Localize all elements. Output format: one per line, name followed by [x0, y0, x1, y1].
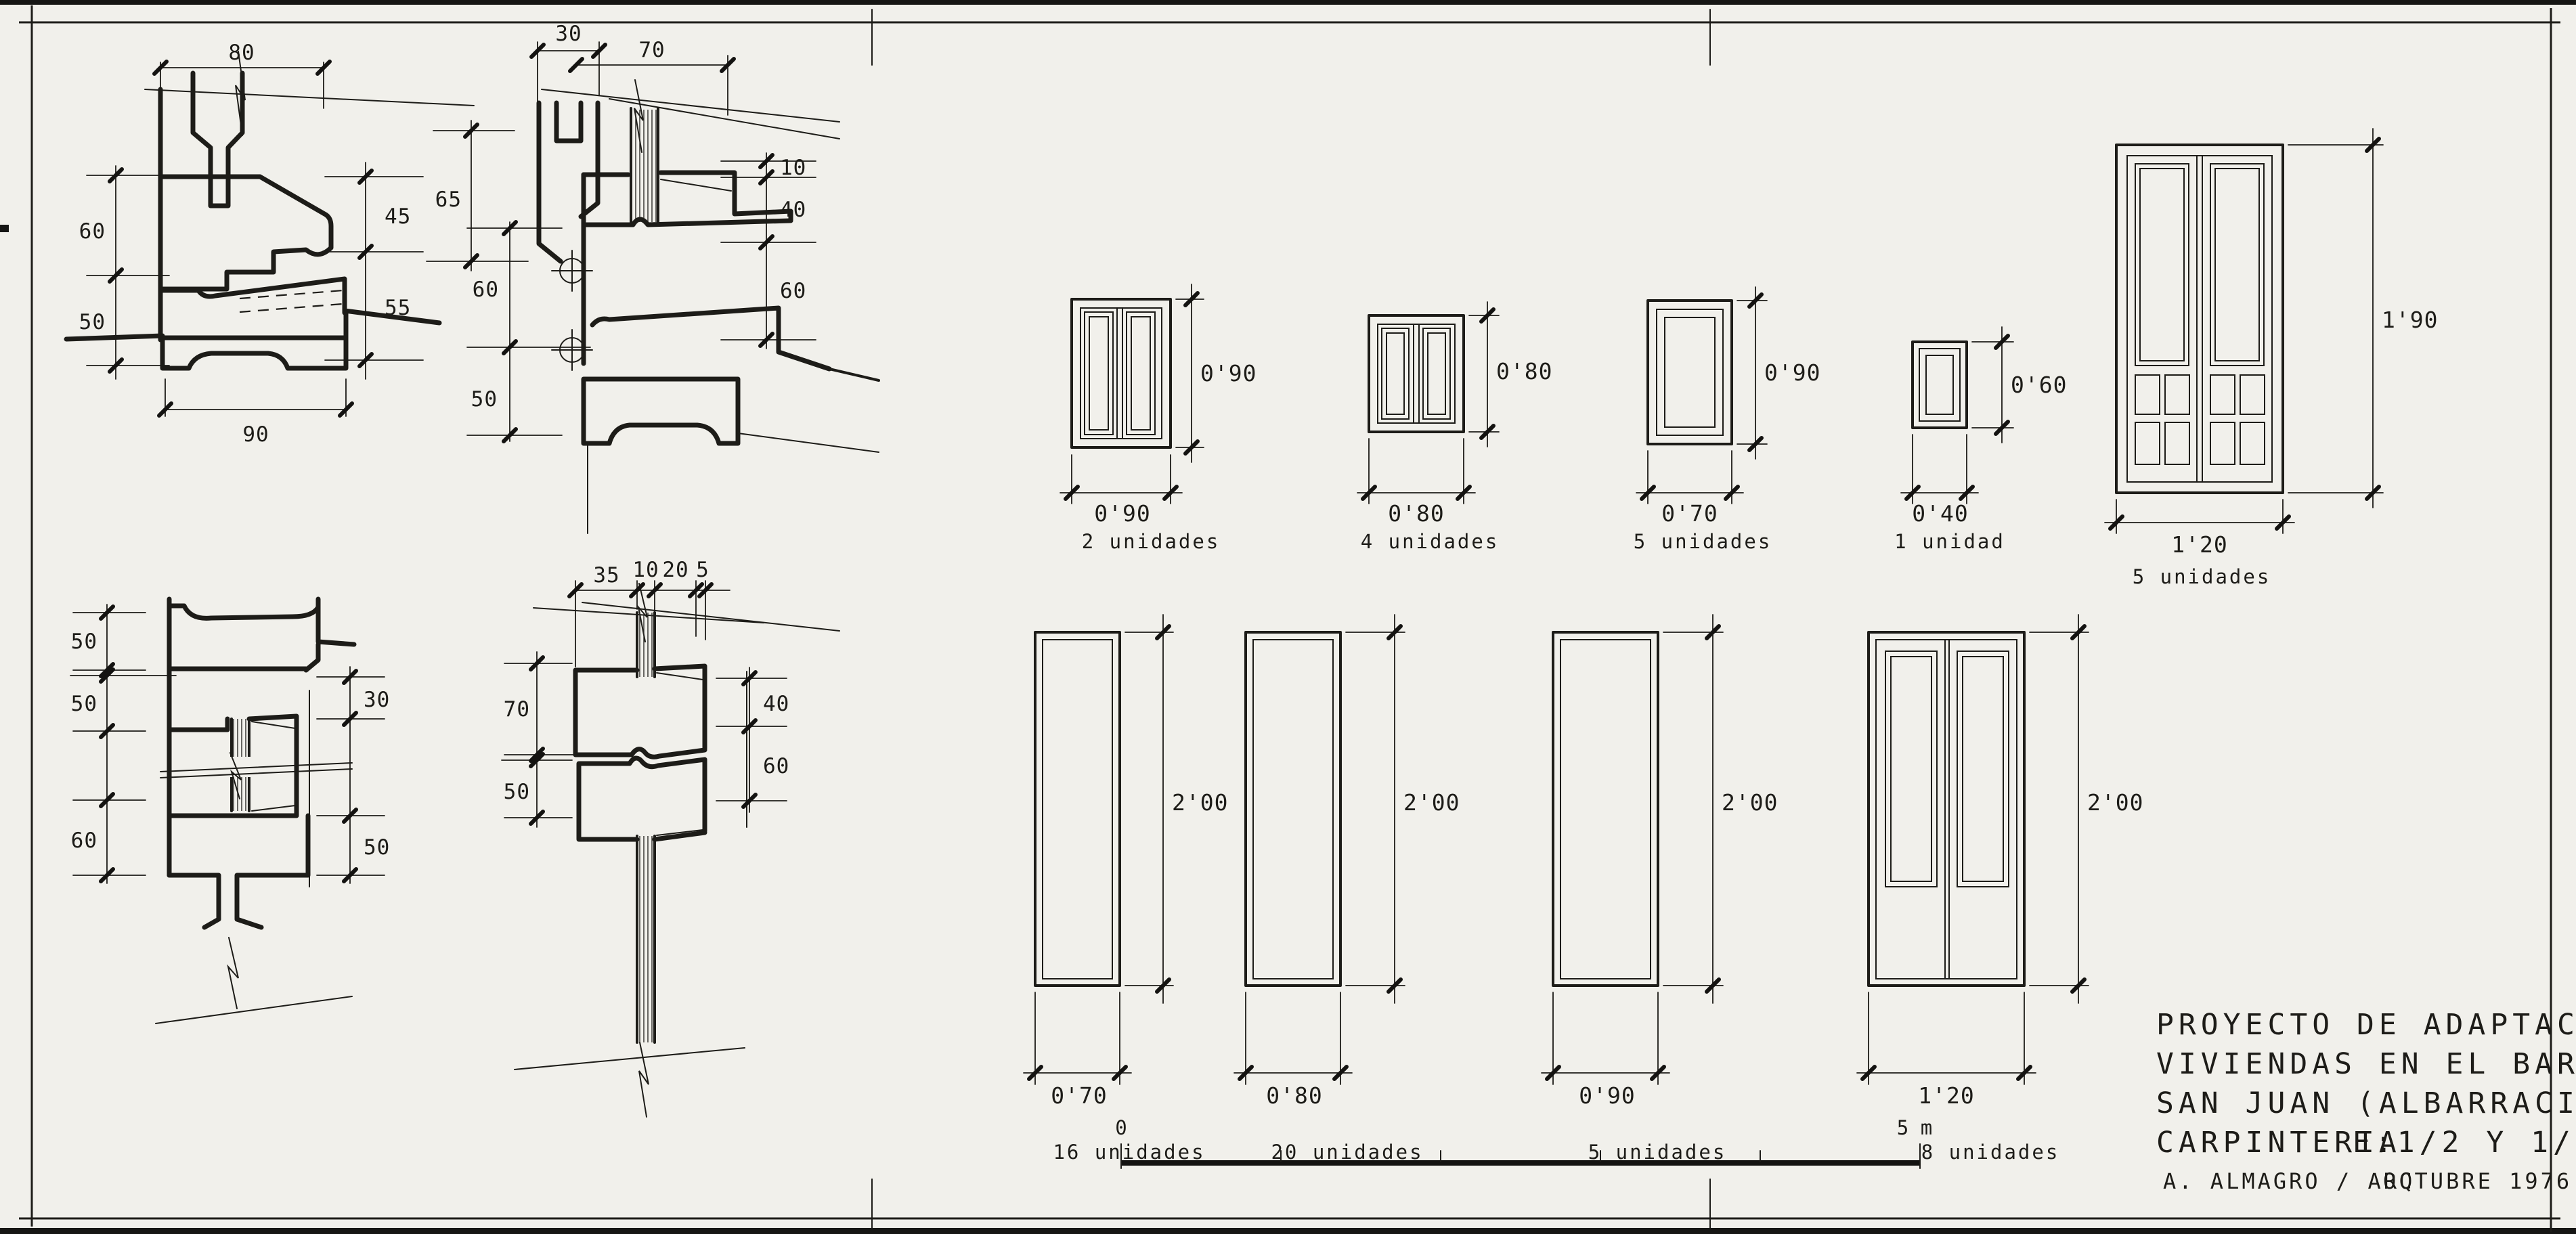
dim-right-lines: [716, 667, 787, 812]
dim-label: 60: [79, 219, 106, 244]
dim-label: 30: [364, 688, 390, 712]
dim-label: 65: [435, 188, 462, 212]
detail-jamb-vertical-section: 50 50 60 30 50: [70, 599, 390, 1023]
height-dim-lines: [2030, 615, 2089, 1003]
detail-sill-section: 80 60 50 45 55 90: [66, 41, 474, 447]
lower-pane: [2210, 375, 2235, 414]
glazed-panel-bead: [1891, 657, 1931, 881]
window-leaf-bead: [1089, 317, 1108, 430]
window-inner-frame: [1657, 309, 1723, 435]
plaster-lines: [160, 763, 352, 778]
window-mullion: [2197, 156, 2202, 482]
door-leaves-frame: [1876, 640, 2017, 979]
lower-pane: [2240, 422, 2265, 464]
height-dim-lines: [1176, 284, 1204, 462]
detail-head-section: 30 70 65 60 50 10 40 60: [427, 22, 879, 533]
height-label: 2'00: [1403, 789, 1460, 816]
height-label: 2'00: [1172, 789, 1228, 816]
dim-label: 50: [504, 780, 530, 804]
lower-stile-profile: [579, 758, 705, 839]
sheet-scale-note: E:1/2 Y 1/25: [2353, 1126, 2576, 1160]
door-elevation-4: 2'00 1'20 8 unidades: [1857, 615, 2143, 1164]
wall-below-lines: [588, 433, 879, 533]
count-label: 5 unidades: [1588, 1141, 1727, 1164]
dim-label: 70: [638, 38, 665, 62]
height-label: 2'00: [1722, 789, 1778, 816]
dim-label: 10: [780, 156, 806, 180]
window-mullion: [1414, 324, 1419, 423]
scale-end-label: 5 m: [1897, 1116, 1932, 1139]
window-mullion: [1117, 308, 1122, 439]
width-dim-lines: [1542, 992, 1669, 1084]
window-leaf: [1665, 317, 1715, 427]
door-frame: [1869, 632, 2024, 986]
glazed-panel: [2135, 164, 2189, 366]
height-label: 2'00: [2087, 789, 2143, 816]
dim-label: 5: [696, 558, 710, 582]
dim-right-lines: [325, 162, 423, 379]
door-leaf: [1253, 640, 1333, 979]
dim-label: 90: [242, 422, 269, 447]
wood-hatch: [638, 613, 653, 677]
window-elevation-4: 0'60 0'40 1 unidad: [1894, 327, 2067, 553]
width-label: 1'20: [1918, 1082, 1974, 1109]
door-elevation-2: 2'00 0'80 20 unidades: [1234, 615, 1460, 1164]
title-block: PROYECTO DE ADAPTACION DE VIVIENDAS EN E…: [2156, 1008, 2576, 1194]
count-label: 4 unidades: [1361, 530, 1500, 553]
glazed-panel-bead: [2140, 169, 2184, 361]
window-elevation-1: 0'90 0'90 2 unidades: [1060, 284, 1257, 553]
sash-profile: [162, 177, 331, 289]
scale-bar: 0 5 m: [1115, 1116, 1932, 1168]
wedge-line: [252, 722, 295, 728]
height-label: 1'90: [2382, 307, 2438, 333]
window-leaf: [1926, 355, 1953, 414]
glazed-panel-bead: [2215, 169, 2259, 361]
window-outer-frame: [2116, 145, 2283, 493]
count-label: 2 unidades: [1082, 530, 1221, 553]
lower-pane: [2165, 375, 2189, 414]
scale-start-label: 0: [1115, 1116, 1127, 1139]
dim-label: 45: [385, 204, 411, 229]
height-dim-lines: [1346, 615, 1405, 1003]
count-label: 16 unidades: [1053, 1141, 1205, 1164]
lower-pane: [2240, 375, 2265, 414]
width-label: 0'70: [1051, 1082, 1107, 1109]
dim-label: 35: [593, 563, 619, 588]
window-leaf-bead: [1131, 317, 1150, 430]
height-dim-lines: [2288, 129, 2383, 508]
dim-label: 50: [364, 835, 390, 860]
lower-pane: [2135, 375, 2160, 414]
window-elevation-2: 0'80 0'80 4 unidades: [1357, 302, 1552, 553]
width-label: 0'90: [1579, 1082, 1635, 1109]
door-frame: [1035, 632, 1120, 986]
dim-label: 50: [71, 630, 97, 654]
door-leaf: [1043, 640, 1112, 979]
drawing-sheet: 80 60 50 45 55 90 30 70: [0, 0, 2576, 1234]
width-label: 1'20: [2171, 531, 2227, 558]
height-label: 0'60: [2011, 372, 2067, 398]
sash-head-profile: [584, 173, 791, 225]
width-dim-lines: [2105, 500, 2294, 533]
glazed-panel: [1885, 651, 1937, 887]
dim-label: 70: [504, 697, 530, 722]
window-elevation-3: 0'90 0'70 5 unidades: [1634, 287, 1821, 553]
registration-ticks: [872, 9, 1710, 1228]
dim-bottom-lines: [165, 379, 346, 416]
title-line: SAN JUAN (ALBARRACIN): [2156, 1086, 2576, 1120]
dim-label: 80: [228, 41, 255, 65]
dim-label: 60: [780, 279, 806, 303]
dim-label: 55: [385, 296, 411, 320]
window-leaf-bead: [1428, 333, 1445, 414]
detail-meeting-stiles-section: 35 10 20 5 70 50 40 60: [502, 558, 839, 1117]
dim-label: 60: [763, 754, 789, 778]
dim-label: 50: [79, 310, 106, 334]
glazed-panel: [2210, 164, 2264, 366]
window-outer-frame: [1072, 299, 1171, 447]
door-frame: [1553, 632, 1658, 986]
leaf-profile: [592, 308, 829, 369]
dim-label: 50: [71, 692, 97, 716]
sill-block-profile: [162, 313, 346, 368]
door-elevation-1: 2'00 0'70 16 unidades: [1024, 615, 1228, 1164]
width-dim-lines: [1357, 439, 1475, 504]
wood-hatch: [631, 110, 658, 222]
floor-line: [66, 336, 162, 339]
width-dim-lines: [1857, 992, 2036, 1084]
wedge-line: [252, 806, 295, 811]
window-inner-frame: [1378, 324, 1455, 423]
carpentry-plan-svg: 80 60 50 45 55 90 30 70: [0, 0, 2576, 1234]
sheet-author: A. ALMAGRO / ARQ: [2163, 1168, 2415, 1194]
height-label: 0'80: [1496, 358, 1552, 384]
lower-pane: [2210, 422, 2235, 464]
wall-face-line: [156, 996, 352, 1023]
glazed-panel: [1957, 651, 2009, 887]
height-label: 0'90: [1764, 359, 1820, 386]
count-label: 8 unidades: [1921, 1141, 2060, 1164]
hinge-axis-crosses: [552, 250, 592, 370]
dim-label: 30: [555, 22, 582, 46]
wedge-line: [657, 673, 703, 680]
wall-face-line: [515, 1048, 745, 1070]
sheet-date: OCTUBRE 1976: [2383, 1168, 2572, 1194]
wall-face-lines: [533, 602, 839, 631]
width-label: 0'90: [1094, 500, 1150, 527]
upper-stile-profile: [575, 666, 705, 757]
drip-line: [829, 369, 879, 380]
width-label: 0'70: [1661, 500, 1718, 527]
width-label: 0'80: [1388, 500, 1444, 527]
dim-label: 50: [471, 387, 498, 412]
scan-edge-bottom: [0, 1228, 2576, 1234]
height-dim-lines: [1737, 287, 1767, 459]
door-leaf: [1560, 640, 1651, 979]
upper-block-profile: [169, 599, 354, 670]
window-elevation-5: 1'90 1'20 5 unidades: [2105, 129, 2438, 588]
dim-top30-lines: [538, 42, 599, 169]
dim-label: 40: [780, 198, 806, 222]
lower-block-profile: [169, 816, 308, 927]
height-label: 0'90: [1200, 360, 1257, 387]
window-inner-frame: [2127, 156, 2272, 482]
jamb-trim-profile: [539, 103, 598, 261]
count-label: 5 unidades: [1634, 530, 1772, 553]
wedge-line: [661, 179, 731, 191]
lower-pane: [2165, 422, 2189, 464]
window-outer-frame: [1648, 301, 1732, 444]
dim-label: 60: [473, 278, 499, 302]
dim-label: 60: [71, 829, 97, 853]
door-center-meeting: [1945, 640, 1949, 979]
height-dim-lines: [1125, 615, 1173, 1003]
break-line: [228, 938, 238, 1009]
door-elevation-3: 2'00 0'90 5 unidades: [1542, 615, 1778, 1164]
scan-artifact-left: [0, 225, 9, 232]
glazed-panel-bead: [1963, 657, 2003, 881]
scan-edge-top: [0, 0, 2576, 5]
window-leaf-bead: [1387, 333, 1404, 414]
count-label: 5 unidades: [2133, 565, 2271, 588]
hidden-edge-dashes: [240, 290, 343, 312]
lower-pane: [2135, 422, 2160, 464]
height-dim-lines: [1663, 615, 1723, 1003]
width-label: 0'40: [1912, 500, 1968, 527]
dim-label: 10: [632, 558, 659, 582]
dim-left-lines: [87, 166, 169, 379]
count-label: 1 unidad: [1894, 530, 2005, 553]
title-line: PROYECTO DE ADAPTACION DE: [2156, 1008, 2576, 1042]
count-label: 20 unidades: [1271, 1141, 1423, 1164]
title-line: VIVIENDAS EN EL BARRIO DE: [2156, 1047, 2576, 1081]
dim-label: 20: [662, 558, 689, 582]
width-dim-lines: [1060, 455, 1182, 504]
sill-block-profile: [584, 379, 738, 443]
wall-face-lines: [542, 89, 839, 139]
break-line: [639, 1042, 649, 1117]
dim-label: 40: [763, 692, 789, 716]
door-frame: [1246, 632, 1340, 986]
width-label: 0'80: [1266, 1082, 1322, 1109]
width-dim-lines: [1234, 992, 1352, 1084]
wood-hatch: [638, 836, 653, 1042]
